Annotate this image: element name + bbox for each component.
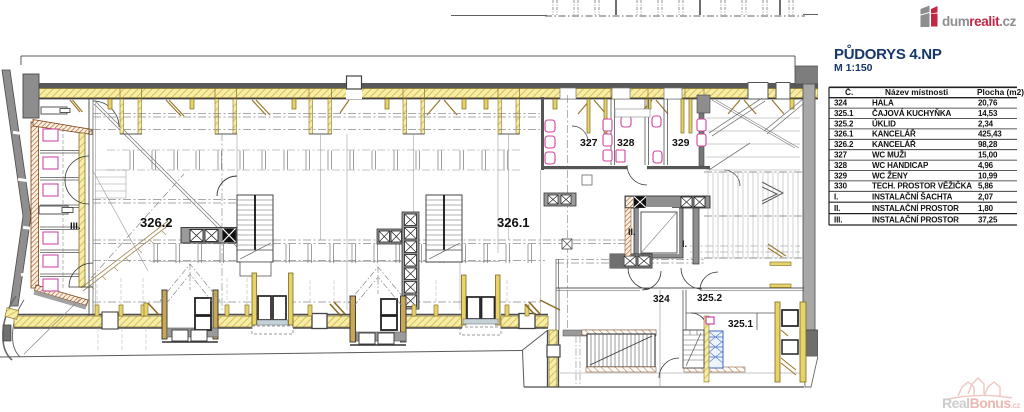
svg-text:329: 329 <box>834 171 848 180</box>
svg-text:326.2: 326.2 <box>140 215 173 230</box>
svg-text:326.1: 326.1 <box>497 215 530 230</box>
svg-text:5,86: 5,86 <box>978 182 994 191</box>
svg-text:2,07: 2,07 <box>978 193 994 202</box>
svg-text:328: 328 <box>617 137 635 149</box>
svg-text:20,76: 20,76 <box>978 99 998 108</box>
svg-text:dumrealit.cz: dumrealit.cz <box>942 14 1017 29</box>
svg-text:330: 330 <box>834 182 848 191</box>
svg-text:328: 328 <box>834 161 848 170</box>
svg-text:HALA: HALA <box>872 99 894 108</box>
svg-text:I.: I. <box>682 239 687 249</box>
svg-text:326.2: 326.2 <box>834 140 854 149</box>
svg-text:ČAJOVÁ KUCHYŇKA: ČAJOVÁ KUCHYŇKA <box>872 109 951 118</box>
svg-text:RealBonus.cz: RealBonus.cz <box>942 395 1020 411</box>
svg-text:325.1: 325.1 <box>834 109 854 118</box>
svg-text:WC MUŽI: WC MUŽI <box>872 151 906 160</box>
svg-text:INSTALAČNÍ ŠACHTA: INSTALAČNÍ ŠACHTA <box>872 193 953 202</box>
svg-text:324: 324 <box>834 99 848 108</box>
svg-text:325.2: 325.2 <box>834 119 854 128</box>
svg-text:425,43: 425,43 <box>978 130 1002 139</box>
svg-text:TECH. PROSTOR VĚŽIČKA: TECH. PROSTOR VĚŽIČKA <box>872 182 972 191</box>
svg-text:III.: III. <box>834 215 842 224</box>
svg-text:WC ŽENY: WC ŽENY <box>872 171 909 180</box>
svg-text:4,96: 4,96 <box>978 161 994 170</box>
svg-text:KANCELÁŘ: KANCELÁŘ <box>872 130 916 139</box>
svg-text:I.: I. <box>834 193 838 202</box>
svg-text:Název místnosti: Název místnosti <box>885 87 948 97</box>
svg-text:14,53: 14,53 <box>978 109 998 118</box>
svg-text:2,34: 2,34 <box>978 119 994 128</box>
svg-text:INSTALAČNÍ PROSTOR: INSTALAČNÍ PROSTOR <box>872 204 959 213</box>
svg-text:327: 327 <box>580 137 598 149</box>
svg-text:M 1:150: M 1:150 <box>834 62 873 74</box>
svg-text:Plocha (m2): Plocha (m2) <box>977 87 1024 97</box>
svg-text:1,80: 1,80 <box>978 204 994 213</box>
svg-text:KANCELÁŘ: KANCELÁŘ <box>872 140 916 149</box>
svg-text:98,28: 98,28 <box>978 140 998 149</box>
svg-text:INSTALAČNÍ PROSTOR: INSTALAČNÍ PROSTOR <box>872 215 959 224</box>
svg-text:15,00: 15,00 <box>978 151 998 160</box>
svg-text:327: 327 <box>834 151 848 160</box>
svg-text:Č.: Č. <box>845 86 853 97</box>
svg-text:324: 324 <box>653 294 670 305</box>
svg-text:II.: II. <box>834 204 840 213</box>
svg-text:II.: II. <box>628 227 636 237</box>
svg-text:326.1: 326.1 <box>834 130 854 139</box>
svg-text:325.1: 325.1 <box>728 319 753 330</box>
svg-text:III.: III. <box>70 221 81 232</box>
svg-text:325.2: 325.2 <box>697 293 722 304</box>
svg-text:ÚKLID: ÚKLID <box>872 119 896 128</box>
svg-text:329: 329 <box>672 137 690 149</box>
svg-text:10,99: 10,99 <box>978 171 998 180</box>
svg-text:37,25: 37,25 <box>978 215 998 224</box>
svg-text:PŮDORYS 4.NP: PŮDORYS 4.NP <box>834 44 942 63</box>
svg-text:WC HANDICAP: WC HANDICAP <box>872 161 929 170</box>
